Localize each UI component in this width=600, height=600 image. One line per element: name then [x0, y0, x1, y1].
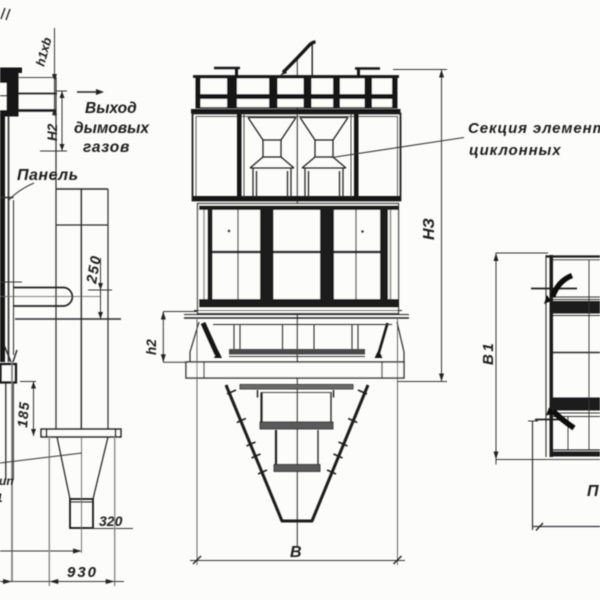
svg-text:газов: газов [83, 139, 130, 156]
svg-text:В1: В1 [480, 341, 497, 365]
svg-text:320: 320 [99, 513, 123, 529]
svg-text:1: 1 [0, 491, 3, 505]
svg-text:П: П [587, 483, 599, 500]
svg-text:H2: H2 [45, 123, 60, 141]
svg-text:930: 930 [67, 564, 98, 581]
svg-text:НЗ: НЗ [421, 218, 438, 240]
svg-text:Секция элементов: Секция элементов [468, 120, 600, 137]
svg-text:чun: чun [0, 474, 14, 488]
svg-text:h2: h2 [144, 339, 159, 355]
svg-text:185: 185 [14, 401, 32, 429]
svg-text:дымовых: дымовых [74, 120, 150, 137]
svg-text:В: В [290, 544, 302, 561]
svg-text:Выход: Выход [85, 100, 137, 117]
svg-text:Панель: Панель [17, 167, 79, 184]
svg-text:циклонных: циклонных [469, 142, 562, 159]
